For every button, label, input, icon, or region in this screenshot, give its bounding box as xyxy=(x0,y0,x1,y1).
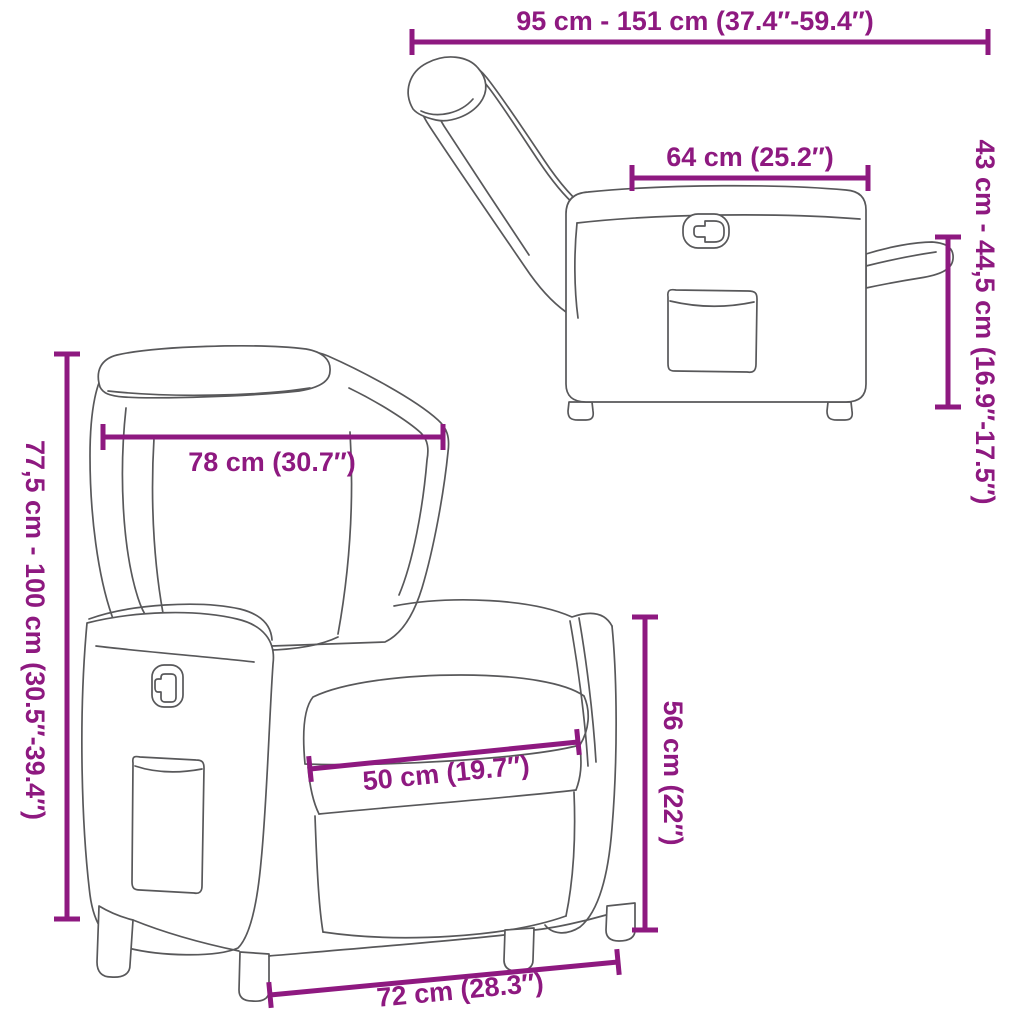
dimension-label: 77,5 cm - 100 cm (30.5″-39.4″) xyxy=(20,440,50,820)
dimension-line xyxy=(54,354,80,919)
diagram-svg: Reclining chair side view with backrest … xyxy=(0,0,1024,1024)
front-seat-front-bottom-edge xyxy=(319,790,576,814)
side-foot-right xyxy=(827,402,852,420)
side-foot-left xyxy=(568,402,593,420)
side-headrest-pillow xyxy=(408,57,486,121)
dimension-label: 56 cm (22″) xyxy=(658,700,688,845)
dimension-total-height: 77,5 cm - 100 cm (30.5″-39.4″) xyxy=(20,354,80,919)
dimension-line xyxy=(632,617,658,930)
side-recline-lever xyxy=(683,214,729,248)
front-foot-right-rear xyxy=(606,903,635,941)
dimension-footrest-height: 43 cm - 44,5 cm (16.9″-17.5″) xyxy=(935,139,1000,504)
side-view-chair: Reclining chair side view with backrest … xyxy=(408,57,953,420)
side-footrest xyxy=(866,242,953,288)
front-view-chair: Reclining chair front three-quarter view xyxy=(82,346,635,1001)
front-foot-left-front xyxy=(239,952,269,1001)
dimension-base-width: 72 cm (28.3″) xyxy=(269,949,619,1013)
dimension-seat-height: 56 cm (22″) xyxy=(632,617,688,930)
dimension-label: 72 cm (28.3″) xyxy=(375,967,545,1013)
front-kick-panel-right-edge xyxy=(566,792,575,916)
front-right-armrest-outer-edge xyxy=(545,626,616,933)
dimension-label: 43 cm - 44,5 cm (16.9″-17.5″) xyxy=(970,139,1000,504)
front-seat-cushion xyxy=(304,675,589,765)
front-recline-lever xyxy=(152,665,183,707)
front-left-armrest xyxy=(82,613,274,955)
dimension-reclined-length: 95 cm - 151 cm (37.4″-59.4″) xyxy=(412,6,988,55)
dimension-top-depth: 64 cm (25.2″) xyxy=(632,142,868,191)
dimension-label: 78 cm (30.7″) xyxy=(188,447,356,477)
dimension-label: 64 cm (25.2″) xyxy=(666,142,834,172)
dimension-label: 95 cm - 151 cm (37.4″-59.4″) xyxy=(516,6,874,36)
front-foot-right-front xyxy=(504,928,534,971)
diagram-canvas: Reclining chair side view with backrest … xyxy=(0,0,1024,1024)
front-kick-panel-left-edge xyxy=(315,816,323,932)
